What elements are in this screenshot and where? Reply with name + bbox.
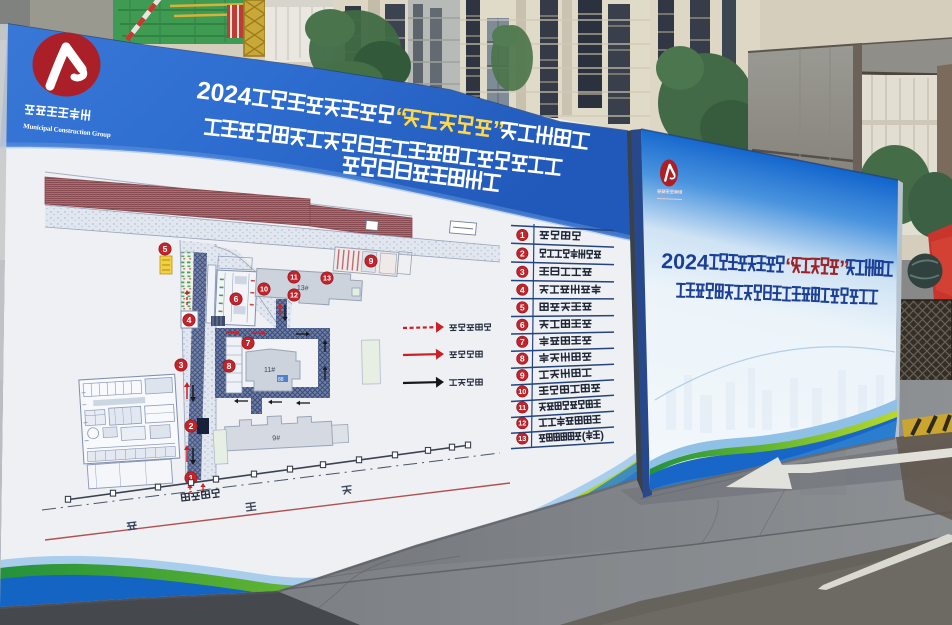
svg-text:11: 11 (290, 273, 298, 282)
svg-text:5: 5 (163, 244, 168, 254)
svg-text:5: 5 (520, 302, 525, 312)
svg-text:4: 4 (520, 285, 525, 295)
svg-text:7: 7 (246, 338, 251, 348)
svg-text:10: 10 (518, 387, 526, 396)
svg-text:2: 2 (189, 421, 194, 431)
svg-text:13: 13 (518, 434, 526, 443)
svg-text:88: 88 (278, 377, 284, 383)
svg-text:2024: 2024 (661, 249, 710, 275)
svg-text:13: 13 (323, 274, 331, 283)
svg-text:6: 6 (234, 294, 239, 304)
svg-text:8: 8 (227, 361, 232, 371)
svg-text:9#: 9# (272, 435, 280, 442)
svg-text:11: 11 (518, 403, 526, 412)
svg-text:1: 1 (520, 230, 525, 240)
svg-text:9: 9 (520, 370, 525, 380)
svg-text:12: 12 (290, 291, 298, 300)
svg-text:6: 6 (520, 320, 525, 330)
svg-text:3: 3 (179, 360, 184, 370)
svg-text:11#: 11# (264, 367, 275, 374)
svg-text:2: 2 (520, 249, 525, 259)
svg-text:10: 10 (260, 285, 268, 294)
svg-text:12: 12 (518, 419, 526, 428)
svg-text:8: 8 (520, 354, 525, 364)
svg-text:9: 9 (369, 256, 374, 266)
svg-text:4: 4 (187, 315, 192, 325)
svg-text:7: 7 (520, 337, 525, 347)
svg-text:3: 3 (520, 267, 525, 277)
